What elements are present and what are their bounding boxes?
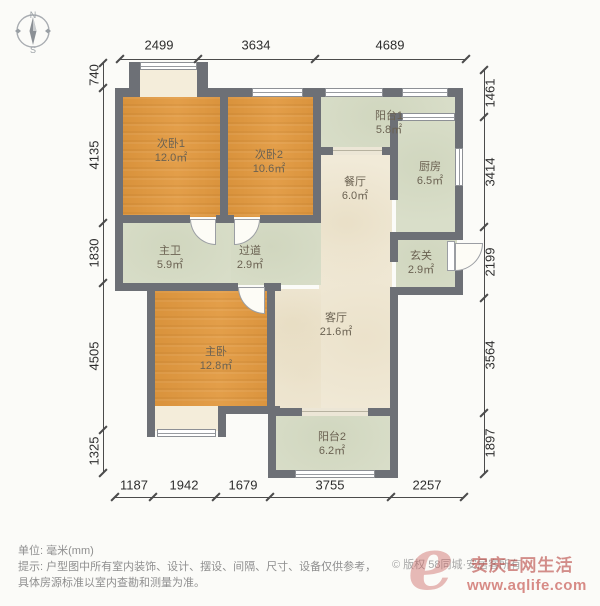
dim-label-right: 1897	[483, 429, 498, 458]
wall-segment	[390, 232, 463, 240]
room-label-master-bedroom: 主卧12.8㎡	[200, 345, 232, 373]
sliding-door-opening	[302, 408, 368, 416]
room-living	[275, 289, 321, 410]
tip-note-line1: 提示: 户型图中所有室内装饰、设计、摆设、间隔、尺寸、设备仅供参考，	[18, 560, 376, 575]
dim-label-bottom: 1942	[170, 478, 199, 493]
wall-segment	[129, 62, 140, 89]
wall-segment	[455, 270, 463, 295]
wall-segment	[268, 470, 295, 478]
wall-segment	[147, 289, 155, 437]
dim-label-right: 3414	[483, 158, 498, 187]
wall-segment	[375, 470, 398, 478]
wall-segment	[390, 295, 398, 478]
window	[402, 88, 448, 97]
wall-segment	[123, 215, 190, 223]
dim-tick	[479, 469, 488, 478]
room-label-dining: 餐厅6.0㎡	[342, 175, 368, 203]
dim-label-top: 4689	[376, 38, 405, 53]
room-label-bedroom-2-2: 次卧210.6㎡	[253, 148, 285, 176]
unit-note: 单位: 毫米(mm)	[18, 544, 376, 559]
dim-label-right: 1461	[483, 79, 498, 108]
wall-segment	[218, 414, 226, 437]
wall-segment	[220, 95, 228, 220]
wall-segment	[390, 240, 398, 262]
floor-plan-canvas: 次卧112.0㎡次卧210.6㎡阳台15.8㎡厨房6.5㎡餐厅6.0㎡客厅21.…	[0, 0, 600, 600]
door-leaf	[447, 241, 455, 271]
dim-line-bottom	[115, 497, 464, 498]
dim-label-bottom: 3755	[316, 478, 345, 493]
wall-segment	[216, 215, 234, 223]
wall-segment	[313, 88, 321, 223]
sliding-door-opening	[333, 147, 382, 155]
room-label-entry: 玄关2.9㎡	[408, 249, 434, 277]
dim-label-top: 3634	[242, 38, 271, 53]
wall-segment	[115, 283, 238, 291]
dim-label-left: 4135	[87, 141, 102, 170]
dim-label-top: 2499	[145, 38, 174, 53]
room-label-balcony-1: 阳台15.8㎡	[375, 109, 403, 137]
dim-label-bottom: 2257	[413, 478, 442, 493]
room-label-master-bath: 主卫5.9㎡	[157, 244, 183, 272]
dim-label-bottom: 1187	[120, 478, 148, 493]
window	[252, 88, 303, 97]
footer-notes: 单位: 毫米(mm) 提示: 户型图中所有室内装饰、设计、摆设、间隔、尺寸、设备…	[18, 544, 376, 592]
room-label-bedroom-2-1: 次卧112.0㎡	[155, 137, 187, 165]
dim-label-right: 3564	[483, 341, 498, 370]
dim-tick	[98, 468, 107, 477]
window	[402, 113, 455, 121]
dim-line-left	[103, 63, 104, 473]
dim-label-bottom: 1679	[229, 478, 258, 493]
dim-label-left: 4505	[87, 342, 102, 371]
window	[455, 148, 463, 186]
room-label-balcony-2: 阳台26.2㎡	[318, 430, 346, 458]
tip-note-line2: 具体房源标准以室内查勘和测量为准。	[18, 576, 376, 591]
room-bay-window-top	[140, 68, 197, 97]
dim-tick	[459, 492, 468, 501]
wall-segment	[260, 215, 321, 223]
wall-segment	[115, 88, 123, 291]
window	[157, 429, 216, 437]
room-bay-window-bottom	[155, 406, 218, 431]
dim-tick	[461, 54, 470, 63]
dim-label-left: 1325	[87, 437, 102, 466]
wall-segment	[268, 406, 276, 478]
wall-segment	[368, 408, 392, 416]
wall-segment	[267, 289, 275, 410]
window	[140, 62, 197, 70]
window	[325, 88, 383, 97]
wall-segment	[321, 147, 333, 155]
wall-segment	[276, 408, 302, 416]
floor-plan-page: { "compass": { "north": "N", "south": "S…	[0, 0, 600, 600]
dim-label-left: 1830	[87, 239, 102, 268]
room-label-living: 客厅21.6㎡	[320, 311, 352, 339]
wall-segment	[390, 287, 455, 295]
dim-label-right: 2199	[483, 248, 498, 277]
copyright-note: © 版权 58同城·安居客所有	[392, 556, 521, 572]
dim-label-left: 740	[87, 64, 102, 86]
dim-line-top	[120, 59, 466, 60]
room-label-hallway: 过道2.9㎡	[237, 244, 263, 272]
wall-segment	[197, 62, 208, 89]
room-label-kitchen: 厨房6.5㎡	[417, 160, 443, 188]
door-arc	[455, 243, 483, 271]
